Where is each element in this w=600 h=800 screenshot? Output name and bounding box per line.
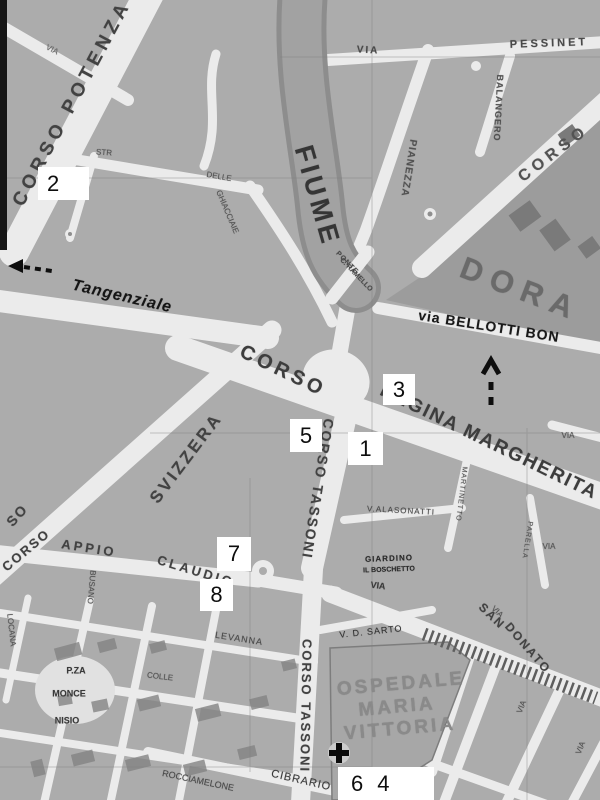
marker-6-4: 64 <box>338 767 434 800</box>
marker-7: 7 <box>217 537 251 571</box>
marker-3: 3 <box>383 374 415 405</box>
marker-5: 5 <box>290 419 322 452</box>
marker-1: 1 <box>348 432 383 465</box>
markers-layer: 23517864 <box>0 0 600 800</box>
marker-8: 8 <box>200 579 233 611</box>
marker-2: 2 <box>38 167 89 200</box>
map: CORSO POTENZAVIAFIUMEDORACORSOVIAPESSINE… <box>0 0 600 800</box>
